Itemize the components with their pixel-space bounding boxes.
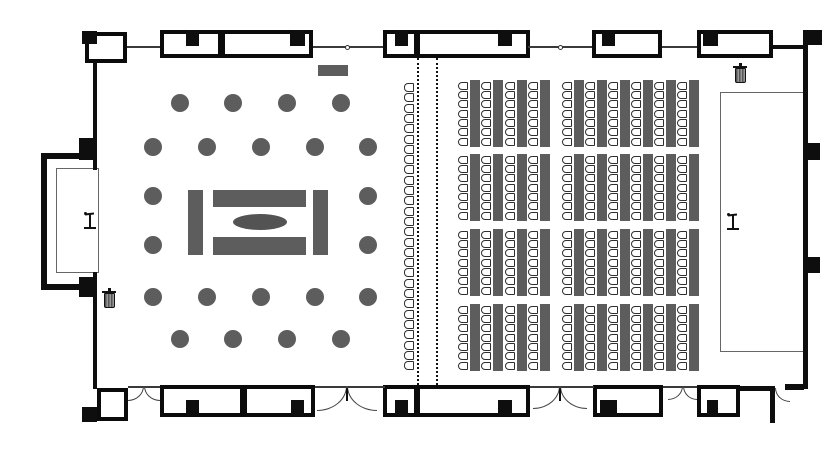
classroom-chair — [458, 138, 468, 146]
classroom-chair — [458, 156, 468, 164]
classroom-chair — [562, 306, 572, 314]
classroom-table — [620, 229, 630, 296]
classroom-chair — [631, 212, 641, 220]
classroom-chair — [458, 259, 468, 267]
classroom-chair — [458, 343, 468, 351]
classroom-chair — [631, 156, 641, 164]
classroom-chair — [608, 100, 618, 108]
door-arc — [668, 386, 683, 400]
classroom-chair — [654, 212, 664, 220]
classroom-table — [493, 304, 503, 371]
classroom-chair — [528, 202, 538, 210]
classroom-chair — [585, 202, 595, 210]
side-table — [318, 65, 348, 76]
classroom-chair — [505, 334, 515, 342]
buffet-table — [188, 190, 203, 255]
trash-bin-part — [735, 68, 746, 83]
classroom-table — [470, 154, 480, 221]
classroom-chair — [458, 128, 468, 136]
classroom-chair — [677, 212, 687, 220]
theater-chair — [404, 155, 414, 164]
classroom-chair — [562, 249, 572, 257]
classroom-table — [517, 304, 527, 371]
classroom-chair — [677, 259, 687, 267]
classroom-table — [666, 229, 676, 296]
wall-block — [600, 400, 617, 416]
classroom-table — [666, 154, 676, 221]
classroom-chair — [481, 156, 491, 164]
classroom-chair — [608, 352, 618, 360]
classroom-chair — [631, 324, 641, 332]
classroom-chair — [585, 119, 595, 127]
classroom-chair — [677, 306, 687, 314]
classroom-chair — [677, 165, 687, 173]
theater-chair — [404, 227, 414, 236]
classroom-chair — [481, 91, 491, 99]
classroom-chair — [654, 343, 664, 351]
classroom-chair — [562, 193, 572, 201]
classroom-table — [574, 229, 584, 296]
theater-chair — [404, 279, 414, 288]
classroom-chair — [528, 91, 538, 99]
classroom-chair — [528, 324, 538, 332]
classroom-chair — [562, 100, 572, 108]
classroom-chair — [631, 82, 641, 90]
classroom-chair — [481, 343, 491, 351]
classroom-chair — [654, 231, 664, 239]
classroom-chair — [677, 268, 687, 276]
classroom-chair — [528, 110, 538, 118]
entry-bay — [160, 385, 244, 417]
classroom-table — [470, 80, 480, 147]
classroom-chair — [631, 259, 641, 267]
door-arc — [317, 386, 347, 411]
classroom-chair — [528, 277, 538, 285]
door-arc — [775, 388, 790, 402]
classroom-chair — [562, 315, 572, 323]
classroom-chair — [631, 174, 641, 182]
classroom-chair — [562, 110, 572, 118]
classroom-chair — [608, 362, 618, 370]
floor-plan — [0, 0, 840, 450]
classroom-chair — [562, 128, 572, 136]
classroom-chair — [608, 156, 618, 164]
trash-bin-icon — [733, 63, 747, 84]
classroom-chair — [562, 277, 572, 285]
classroom-chair — [505, 240, 515, 248]
classroom-chair — [677, 315, 687, 323]
classroom-chair — [631, 202, 641, 210]
classroom-chair — [528, 259, 538, 267]
stand-part — [89, 214, 91, 227]
wall-block — [41, 153, 47, 290]
classroom-chair — [608, 82, 618, 90]
classroom-chair — [562, 202, 572, 210]
classroom-table — [493, 80, 503, 147]
classroom-chair — [654, 324, 664, 332]
classroom-table — [470, 229, 480, 296]
classroom-chair — [585, 259, 595, 267]
wall-block — [803, 44, 808, 389]
classroom-chair — [608, 184, 618, 192]
classroom-table — [643, 229, 653, 296]
classroom-chair — [677, 334, 687, 342]
classroom-chair — [562, 268, 572, 276]
classroom-chair — [505, 306, 515, 314]
classroom-chair — [481, 324, 491, 332]
door-arc — [347, 386, 377, 411]
theater-chair — [404, 93, 414, 102]
classroom-chair — [654, 184, 664, 192]
classroom-chair — [562, 343, 572, 351]
classroom-chair — [505, 138, 515, 146]
classroom-chair — [631, 184, 641, 192]
classroom-chair — [458, 91, 468, 99]
classroom-table — [597, 154, 607, 221]
classroom-chair — [528, 128, 538, 136]
classroom-chair — [585, 287, 595, 295]
classroom-chair — [562, 174, 572, 182]
classroom-chair — [654, 138, 664, 146]
classroom-chair — [631, 119, 641, 127]
classroom-chair — [505, 343, 515, 351]
classroom-chair — [608, 138, 618, 146]
classroom-chair — [458, 100, 468, 108]
classroom-chair — [654, 259, 664, 267]
classroom-chair — [654, 100, 664, 108]
classroom-chair — [458, 362, 468, 370]
classroom-chair — [631, 138, 641, 146]
classroom-chair — [585, 100, 595, 108]
round-table — [359, 187, 377, 205]
classroom-chair — [481, 334, 491, 342]
classroom-chair — [608, 165, 618, 173]
theater-chair — [404, 104, 414, 113]
classroom-chair — [528, 287, 538, 295]
classroom-chair — [458, 277, 468, 285]
classroom-chair — [608, 119, 618, 127]
classroom-chair — [585, 91, 595, 99]
theater-chair — [404, 341, 414, 350]
buffet-table — [313, 190, 328, 255]
classroom-chair — [528, 184, 538, 192]
classroom-chair — [481, 259, 491, 267]
trash-bin-icon — [102, 288, 116, 309]
round-table — [198, 138, 216, 156]
theater-chair — [404, 320, 414, 329]
classroom-table — [517, 229, 527, 296]
classroom-chair — [631, 193, 641, 201]
classroom-chair — [458, 110, 468, 118]
classroom-chair — [458, 82, 468, 90]
wall-block — [803, 30, 822, 45]
classroom-chair — [654, 268, 664, 276]
theater-chair — [404, 258, 414, 267]
wall-block — [41, 284, 97, 290]
classroom-chair — [481, 184, 491, 192]
classroom-chair — [481, 277, 491, 285]
theater-chair — [404, 289, 414, 298]
classroom-chair — [654, 334, 664, 342]
classroom-chair — [677, 249, 687, 257]
classroom-chair — [677, 82, 687, 90]
classroom-chair — [458, 240, 468, 248]
classroom-chair — [458, 165, 468, 173]
classroom-table — [597, 80, 607, 147]
entry-bay — [243, 385, 315, 417]
classroom-chair — [608, 306, 618, 314]
classroom-chair — [505, 91, 515, 99]
classroom-chair — [677, 240, 687, 248]
classroom-table — [597, 229, 607, 296]
classroom-table — [643, 80, 653, 147]
wall-block — [82, 407, 97, 422]
classroom-chair — [562, 156, 572, 164]
buffet-oval — [233, 214, 287, 230]
classroom-chair — [608, 202, 618, 210]
classroom-chair — [528, 156, 538, 164]
theater-chair — [404, 299, 414, 308]
classroom-chair — [562, 334, 572, 342]
stand-part — [727, 213, 730, 216]
classroom-chair — [654, 202, 664, 210]
theater-chair — [404, 165, 414, 174]
classroom-chair — [528, 343, 538, 351]
classroom-chair — [585, 128, 595, 136]
round-table — [306, 288, 324, 306]
classroom-chair — [505, 202, 515, 210]
classroom-table — [689, 229, 699, 296]
window-wall — [662, 46, 697, 48]
classroom-chair — [677, 324, 687, 332]
classroom-chair — [528, 212, 538, 220]
classroom-chair — [654, 315, 664, 323]
classroom-chair — [481, 138, 491, 146]
theater-chair — [404, 268, 414, 277]
classroom-chair — [654, 277, 664, 285]
classroom-table — [597, 304, 607, 371]
classroom-chair — [458, 249, 468, 257]
classroom-chair — [481, 100, 491, 108]
classroom-chair — [631, 231, 641, 239]
classroom-chair — [481, 119, 491, 127]
classroom-chair — [505, 277, 515, 285]
round-table — [198, 288, 216, 306]
classroom-chair — [585, 156, 595, 164]
theater-chair — [404, 135, 414, 144]
classroom-chair — [654, 82, 664, 90]
wall-block — [773, 45, 807, 49]
classroom-chair — [677, 343, 687, 351]
classroom-chair — [562, 91, 572, 99]
round-table — [359, 138, 377, 156]
round-table — [278, 330, 296, 348]
classroom-chair — [608, 334, 618, 342]
theater-chair — [404, 351, 414, 360]
classroom-chair — [654, 91, 664, 99]
classroom-chair — [677, 193, 687, 201]
classroom-chair — [608, 259, 618, 267]
classroom-chair — [528, 249, 538, 257]
classroom-chair — [677, 128, 687, 136]
classroom-chair — [528, 352, 538, 360]
classroom-chair — [505, 212, 515, 220]
theater-chair — [404, 238, 414, 247]
classroom-chair — [654, 249, 664, 257]
stand-part — [727, 228, 739, 230]
classroom-chair — [528, 315, 538, 323]
classroom-chair — [528, 138, 538, 146]
round-table — [252, 288, 270, 306]
classroom-chair — [458, 324, 468, 332]
classroom-chair — [481, 212, 491, 220]
classroom-chair — [585, 306, 595, 314]
theater-chair — [404, 217, 414, 226]
classroom-table — [540, 154, 550, 221]
classroom-chair — [562, 82, 572, 90]
classroom-chair — [562, 352, 572, 360]
theater-chair — [404, 330, 414, 339]
theater-chair — [404, 176, 414, 185]
round-table — [171, 94, 189, 112]
classroom-chair — [458, 212, 468, 220]
classroom-chair — [654, 156, 664, 164]
classroom-chair — [654, 119, 664, 127]
stand-part — [84, 227, 96, 229]
door-arc — [560, 386, 587, 409]
classroom-table — [540, 80, 550, 147]
entry-bay — [416, 385, 530, 417]
classroom-chair — [562, 119, 572, 127]
classroom-table — [689, 80, 699, 147]
trash-bin-part — [104, 293, 115, 308]
classroom-chair — [585, 268, 595, 276]
classroom-chair — [528, 231, 538, 239]
classroom-chair — [505, 128, 515, 136]
round-table — [252, 138, 270, 156]
wall-block — [395, 30, 408, 46]
door-post — [346, 388, 348, 401]
partition-track — [417, 58, 419, 385]
classroom-chair — [585, 324, 595, 332]
classroom-chair — [458, 193, 468, 201]
classroom-table — [540, 229, 550, 296]
classroom-chair — [608, 287, 618, 295]
theater-chair — [404, 114, 414, 123]
classroom-chair — [608, 91, 618, 99]
wall-block — [602, 30, 615, 46]
classroom-chair — [585, 110, 595, 118]
wall-block — [186, 400, 199, 416]
classroom-chair — [458, 231, 468, 239]
classroom-chair — [528, 193, 538, 201]
door-arc — [683, 386, 697, 400]
classroom-chair — [677, 352, 687, 360]
theater-chair — [404, 145, 414, 154]
classroom-chair — [505, 174, 515, 182]
classroom-chair — [458, 174, 468, 182]
classroom-chair — [677, 91, 687, 99]
classroom-chair — [528, 240, 538, 248]
classroom-chair — [505, 259, 515, 267]
buffet-table — [213, 237, 306, 255]
classroom-chair — [505, 100, 515, 108]
classroom-chair — [585, 352, 595, 360]
classroom-chair — [528, 165, 538, 173]
classroom-chair — [654, 193, 664, 201]
classroom-table — [540, 304, 550, 371]
classroom-chair — [608, 249, 618, 257]
classroom-chair — [677, 138, 687, 146]
round-table — [359, 236, 377, 254]
wall-joint — [345, 45, 350, 50]
classroom-chair — [505, 119, 515, 127]
wall-block — [93, 61, 97, 170]
classroom-chair — [608, 277, 618, 285]
classroom-chair — [481, 352, 491, 360]
classroom-chair — [677, 202, 687, 210]
classroom-chair — [481, 287, 491, 295]
wall-block — [498, 30, 512, 46]
round-table — [144, 236, 162, 254]
classroom-chair — [631, 165, 641, 173]
classroom-chair — [505, 110, 515, 118]
wall-block — [82, 31, 97, 44]
classroom-chair — [585, 193, 595, 201]
classroom-chair — [585, 240, 595, 248]
classroom-chair — [631, 277, 641, 285]
classroom-chair — [505, 287, 515, 295]
round-table — [144, 288, 162, 306]
classroom-chair — [505, 362, 515, 370]
classroom-chair — [458, 184, 468, 192]
classroom-chair — [608, 128, 618, 136]
wall-block — [290, 30, 305, 46]
classroom-table — [470, 304, 480, 371]
classroom-chair — [677, 287, 687, 295]
classroom-chair — [631, 306, 641, 314]
theater-chair — [404, 196, 414, 205]
classroom-chair — [458, 268, 468, 276]
classroom-chair — [585, 249, 595, 257]
wall-block — [291, 400, 304, 416]
classroom-chair — [481, 306, 491, 314]
stand-icon — [726, 212, 740, 232]
classroom-chair — [505, 352, 515, 360]
classroom-chair — [585, 82, 595, 90]
classroom-table — [620, 154, 630, 221]
theater-chair — [404, 207, 414, 216]
theater-chair — [404, 361, 414, 370]
classroom-chair — [677, 119, 687, 127]
round-table — [224, 94, 242, 112]
classroom-chair — [505, 315, 515, 323]
classroom-chair — [562, 212, 572, 220]
classroom-chair — [458, 287, 468, 295]
round-table — [224, 330, 242, 348]
classroom-chair — [608, 268, 618, 276]
classroom-chair — [585, 277, 595, 285]
stand-part — [732, 215, 734, 228]
classroom-chair — [528, 306, 538, 314]
classroom-chair — [481, 362, 491, 370]
classroom-chair — [631, 343, 641, 351]
classroom-chair — [585, 362, 595, 370]
classroom-table — [574, 304, 584, 371]
classroom-table — [517, 80, 527, 147]
round-table — [332, 94, 350, 112]
round-table — [278, 94, 296, 112]
